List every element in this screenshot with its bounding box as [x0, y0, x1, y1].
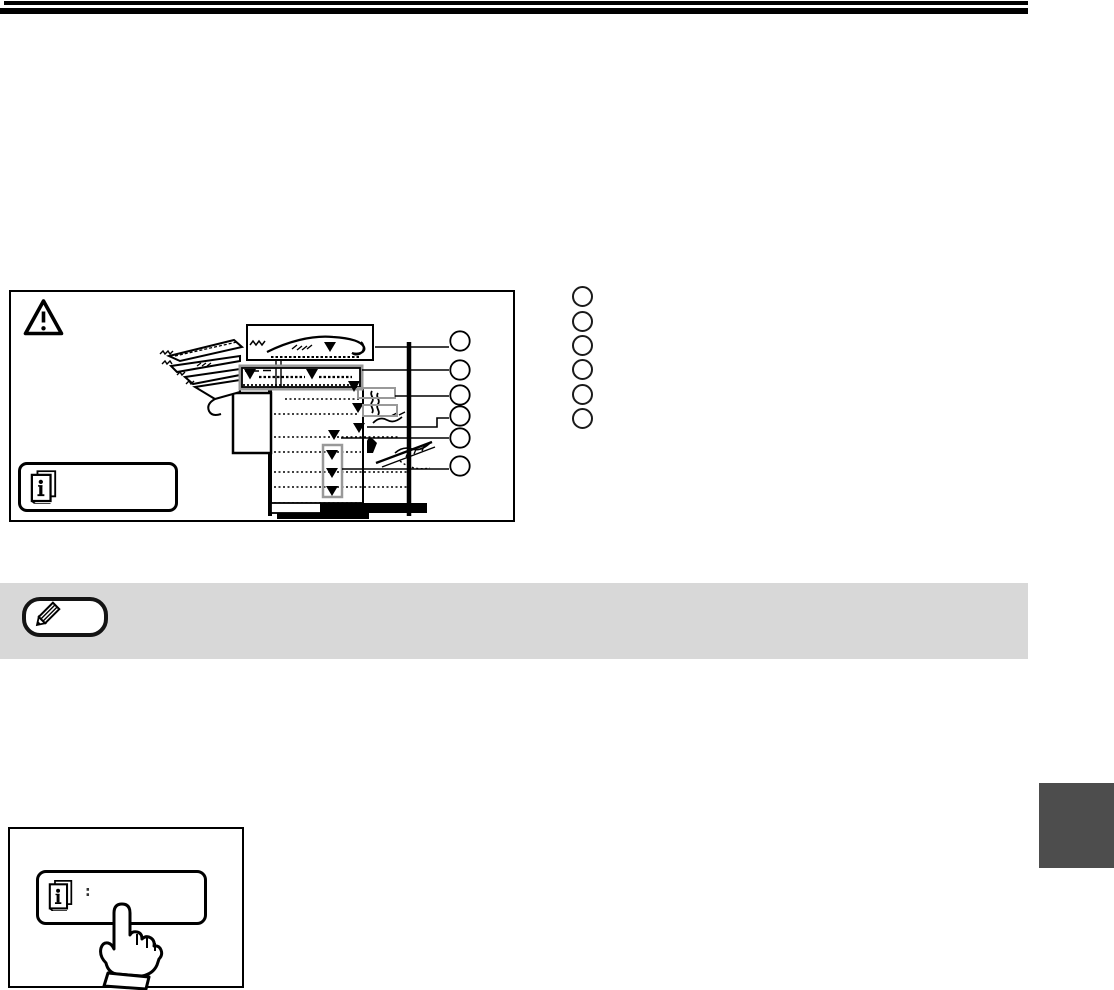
callout-circle [450, 331, 469, 350]
callout-circle [450, 360, 469, 379]
callout-circle [450, 428, 469, 447]
legend-circle [572, 335, 593, 356]
pointing-hand-icon [86, 893, 170, 990]
legend-circle [572, 384, 593, 405]
legend-circle [572, 286, 593, 307]
callout-circle [450, 406, 469, 425]
pencil-icon [26, 601, 96, 631]
callout-circle [450, 385, 469, 404]
manual-page: : [0, 0, 1114, 990]
legend-circle [572, 359, 593, 380]
top-rule-thin [4, 1, 1028, 5]
info-book-icon [48, 880, 74, 911]
warning-triangle-icon [26, 301, 62, 334]
callout-circle [450, 456, 469, 475]
legend-circle [572, 311, 593, 332]
top-rule-thick [0, 8, 1028, 14]
chapter-side-tab [1039, 783, 1114, 868]
parts-diagram-figure [9, 290, 515, 522]
note-pill [22, 597, 108, 637]
note-band [0, 583, 1028, 659]
info-key-figure: : [8, 827, 244, 988]
copier-line-art [160, 325, 435, 519]
info-key-button [18, 462, 178, 512]
legend-circle [572, 408, 593, 429]
info-book-icon [30, 470, 58, 504]
